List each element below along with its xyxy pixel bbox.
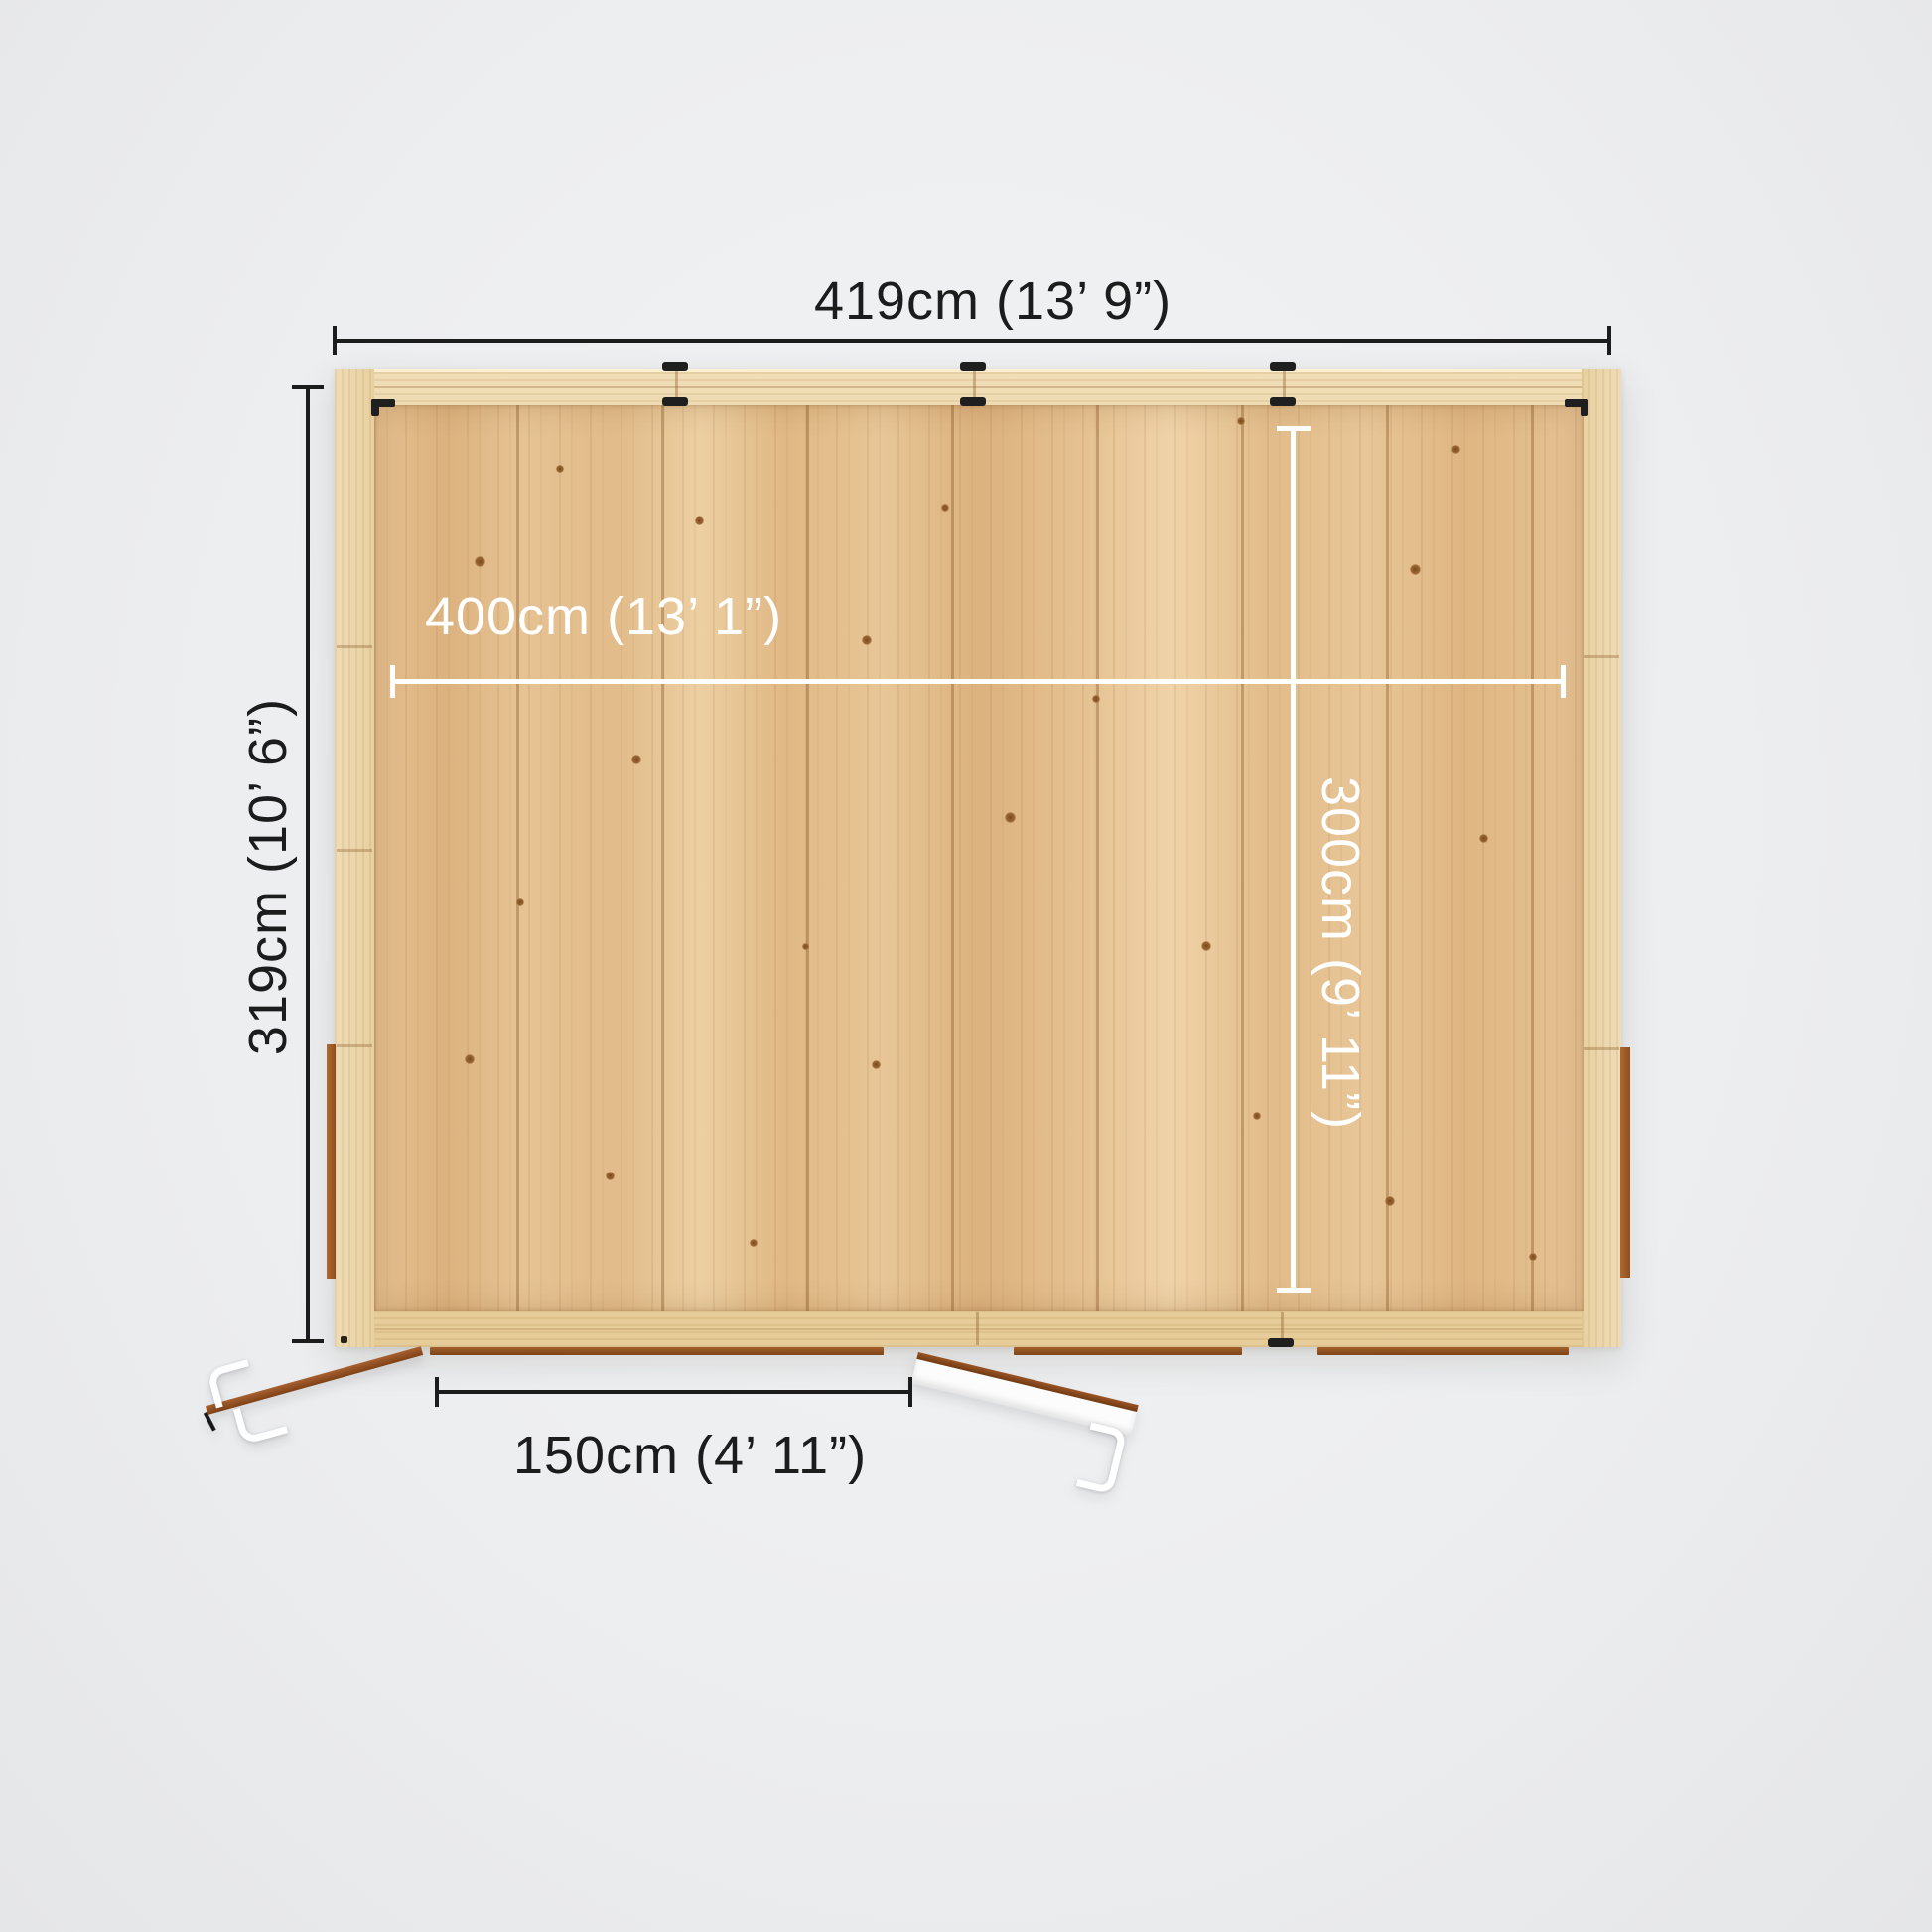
dimension-line xyxy=(437,1390,910,1394)
top-wall-seam xyxy=(335,386,1621,388)
wood-knot xyxy=(750,1239,758,1247)
fixing-clip-icon xyxy=(960,397,986,406)
dimension-tick xyxy=(435,1377,439,1407)
wood-knot xyxy=(862,635,872,645)
left-wall-joint xyxy=(337,1044,372,1047)
wood-knot xyxy=(465,1054,475,1064)
fixing-clip-icon xyxy=(960,362,986,371)
dimension-line xyxy=(306,387,310,1343)
door-left-open xyxy=(206,1346,423,1415)
wood-knot xyxy=(802,943,809,950)
wood-knot xyxy=(516,898,524,906)
left-wall-joint xyxy=(337,849,372,852)
wood-knot xyxy=(1479,834,1488,843)
dimension-label: 419cm (13’ 9”) xyxy=(715,271,1271,331)
wood-knot xyxy=(1385,1196,1395,1206)
wood-knot xyxy=(695,516,704,525)
bottom-trim xyxy=(1317,1347,1569,1355)
dimension-label: 150cm (4’ 11”) xyxy=(412,1426,968,1485)
bottom-trim xyxy=(1014,1347,1242,1355)
corner-bracket-icon xyxy=(1581,399,1588,416)
left-wall-trim xyxy=(327,1044,336,1279)
dimension-line xyxy=(335,339,1610,343)
right-wall-joint xyxy=(1584,1047,1619,1050)
dimension-tick xyxy=(390,665,395,698)
door-handle-icon xyxy=(1076,1423,1127,1495)
wood-knot xyxy=(1237,417,1245,425)
wood-knot xyxy=(606,1172,615,1180)
dimension-tick xyxy=(1277,426,1311,431)
right-wall xyxy=(1582,369,1621,1347)
floor xyxy=(374,405,1584,1311)
dimension-tick xyxy=(333,326,337,355)
dimension-tick xyxy=(292,1339,324,1343)
corner-mark xyxy=(341,1336,347,1343)
corner-bracket-icon xyxy=(371,399,379,416)
wood-knot xyxy=(1451,445,1460,454)
dimension-tick xyxy=(292,385,324,389)
wood-knot xyxy=(1005,812,1016,823)
wood-knot xyxy=(1092,695,1100,703)
right-wall-joint xyxy=(1584,655,1619,658)
bottom-wall-joint xyxy=(976,1312,979,1345)
wood-knot xyxy=(872,1060,881,1069)
dimension-line xyxy=(1291,428,1296,1292)
dimension-tick xyxy=(1561,665,1566,698)
fixing-clip-icon xyxy=(1270,397,1296,406)
floor-plan-diagram: 419cm (13’ 9”) 319cm (10’ 6”) 400cm (13’… xyxy=(0,0,1932,1932)
left-wall xyxy=(335,369,374,1347)
door-edge-tip xyxy=(204,1412,216,1432)
fixing-clip-icon xyxy=(662,397,688,406)
wood-knot xyxy=(631,755,641,764)
dimension-tick xyxy=(1277,1288,1311,1293)
fixing-clip-icon xyxy=(662,362,688,371)
wood-knot xyxy=(941,504,949,512)
wood-knot xyxy=(475,556,485,567)
dimension-label: 400cm (13’ 1”) xyxy=(326,587,882,646)
dimension-line xyxy=(392,679,1564,684)
wood-knot xyxy=(1253,1112,1261,1120)
wood-knot xyxy=(1201,941,1211,951)
door-handle-icon xyxy=(207,1359,258,1408)
wood-knot xyxy=(1410,564,1421,575)
dimension-tick xyxy=(908,1377,912,1407)
wood-knot xyxy=(556,465,564,473)
fixing-clip-icon xyxy=(1268,1338,1294,1347)
right-wall-trim xyxy=(1620,1047,1630,1278)
door-right-open xyxy=(911,1352,1139,1436)
dimension-label: 300cm (9’ 11”) xyxy=(1311,675,1370,1231)
dimension-label: 319cm (10’ 6”) xyxy=(238,599,298,1155)
wood-knot xyxy=(1529,1253,1537,1261)
door-sill xyxy=(430,1347,884,1355)
cabin-top-view xyxy=(335,369,1621,1347)
door-handle-icon xyxy=(233,1397,288,1445)
fixing-clip-icon xyxy=(1270,362,1296,371)
dimension-tick xyxy=(1607,326,1611,355)
